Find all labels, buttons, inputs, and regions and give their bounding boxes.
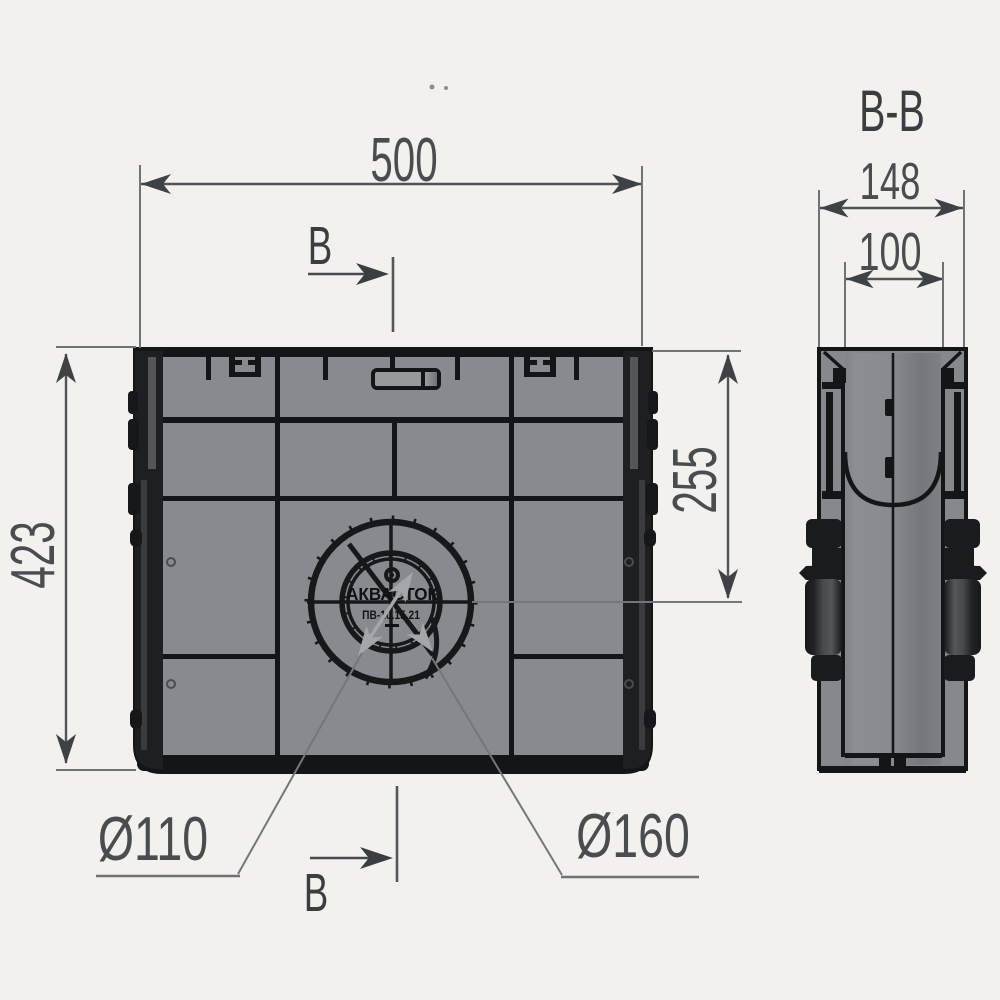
svg-text:ПВ-10.15.21: ПВ-10.15.21 bbox=[362, 609, 420, 622]
svg-text:B: B bbox=[304, 862, 328, 923]
svg-text:B-B: B-B bbox=[859, 78, 925, 143]
svg-text:Ø160: Ø160 bbox=[576, 800, 690, 870]
svg-text:148: 148 bbox=[860, 151, 921, 210]
svg-text:B: B bbox=[308, 215, 332, 276]
svg-text:255: 255 bbox=[661, 446, 730, 513]
svg-text:423: 423 bbox=[0, 521, 68, 588]
svg-text:Ø110: Ø110 bbox=[98, 803, 208, 873]
